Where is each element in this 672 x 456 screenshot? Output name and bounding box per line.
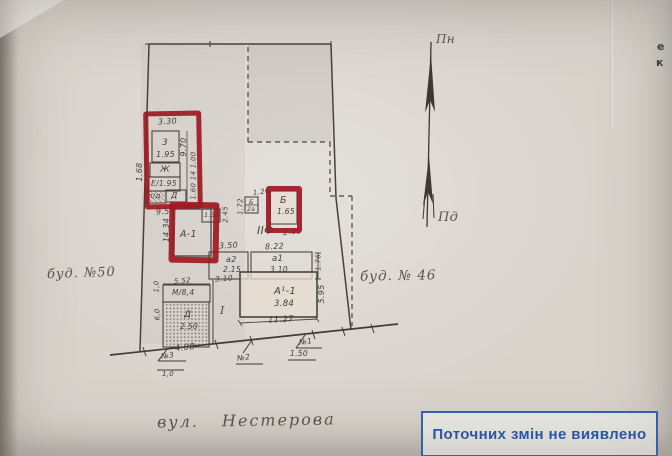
dim-2-45: 2.45 (223, 204, 230, 226)
north-arrow (423, 42, 435, 227)
right-neighbor-label: буд. № 46 (360, 269, 437, 284)
no-changes-stamp: Поточних змін не виявлено (421, 411, 658, 456)
compass-south-label: Пд (438, 211, 458, 224)
main-house-height: 3.84 (274, 300, 294, 309)
highlight-box-1 (143, 111, 203, 210)
dim-1-0-side: 1,0 (154, 277, 161, 297)
mark-no1: №1 (299, 337, 313, 346)
mark-no2: №2 (237, 353, 251, 362)
dim-6-0-side: 6,0 (155, 305, 162, 325)
street-line (110, 324, 398, 370)
yard-mark: І (220, 305, 225, 316)
stamp-text: Поточних змін не виявлено (432, 426, 646, 443)
shed-b-small-label: Б (249, 199, 254, 206)
porch-a1-height: 3.10 (270, 266, 288, 274)
mark-no3: №3 (161, 351, 175, 360)
porch-a1-label: а1 (272, 255, 283, 264)
dim-1-76: 1.76 (316, 252, 323, 274)
mark-no3-value: 1,0 (162, 371, 174, 378)
dim-11-27: 11.27 (268, 316, 294, 325)
dim-4-08: 4.08 (175, 343, 196, 354)
shed-d-hatched-label: Д (184, 311, 191, 320)
dim-1-68: 1.68 (136, 160, 144, 184)
left-neighbor-label: буд. №50 (47, 266, 116, 281)
highlight-box-2 (168, 202, 219, 264)
dim-1-72: 1.72 (238, 196, 245, 218)
dim-5-95: 5.95 (318, 281, 326, 307)
edge-text-line2: к (656, 56, 663, 69)
compass-north-label: Пн (436, 33, 455, 45)
plan-linework (0, 0, 672, 456)
highlight-box-3 (266, 186, 302, 233)
dim-3-50: 3.50 (219, 242, 238, 251)
shed-b-small-2a: 2а (247, 207, 255, 213)
dim-5-52: 5.52 (174, 277, 191, 285)
dim-3-10: 3.10 (215, 274, 233, 283)
dim-8-22: 8.22 (265, 243, 284, 252)
m-block-label: М/8,4 (172, 289, 194, 297)
edge-text-line1: е (657, 40, 664, 53)
street-name-label: вул. Нестерова (157, 411, 336, 430)
scanned-site-plan: 3.30 3 1.95 9.70 Ж Е/1.95 п/д Д 1.60 14 … (0, 0, 672, 456)
main-house-label: А¹-1 (274, 287, 296, 297)
porch-a2-label: а2 (226, 256, 237, 264)
shed-d-hatched-height: 2.50 (180, 323, 198, 331)
mark-no1-value: 1.50 (290, 350, 308, 358)
